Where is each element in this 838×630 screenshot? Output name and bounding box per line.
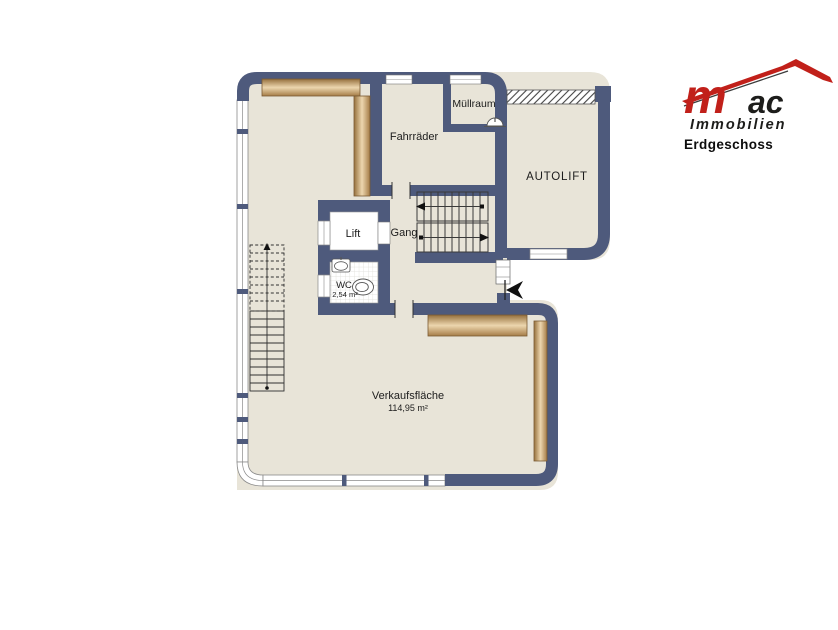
- room-label-autolift: AUTOLIFT: [526, 171, 588, 183]
- room-label-muellraum: Müllraum: [452, 98, 495, 110]
- wall-fahrraeder-west: [370, 72, 382, 196]
- company-logo: m ac Immobilien: [682, 56, 838, 132]
- room-label-lift: Lift: [346, 228, 361, 240]
- door-lift: [378, 222, 390, 244]
- autolift-gate: [507, 90, 595, 104]
- logo-subtitle: Immobilien: [690, 117, 787, 132]
- wall-wc-south: [318, 303, 395, 315]
- wall-autolift-northeast-corner: [595, 86, 611, 102]
- wall-stairwell-south: [415, 252, 503, 263]
- logo-letters-ac: ac: [748, 84, 784, 120]
- logo-graphic: m ac Immobilien: [682, 56, 838, 132]
- entry-door: [496, 260, 510, 284]
- door-fahrraeder-gang: [392, 185, 410, 196]
- wall-fahrraeder-south: [370, 185, 503, 196]
- room-label-gang: Gang: [391, 227, 418, 239]
- room-area-verkaufsflaeche: 114,95 m²: [388, 403, 428, 413]
- room-area-wc: 2,54 m²: [332, 290, 358, 299]
- door-gang-sales: [395, 303, 413, 315]
- wall-entry-stub: [497, 293, 510, 306]
- room-label-verkaufsflaeche: Verkaufsfläche: [372, 390, 444, 402]
- floor-title-label: Erdgeschoss: [684, 137, 773, 152]
- wc-sink-icon: [332, 257, 350, 272]
- counter-north-side: [354, 96, 370, 196]
- counter-north-top: [262, 79, 360, 96]
- wall-lift-wc-divider: [318, 250, 390, 262]
- room-label-fahrraeder: Fahrräder: [390, 131, 439, 143]
- floorplan-page: Müllraum Fahrräder AUTOLIFT Lift Gang WC…: [0, 0, 838, 630]
- counter-south-side: [534, 321, 547, 461]
- counter-south-top: [428, 315, 527, 336]
